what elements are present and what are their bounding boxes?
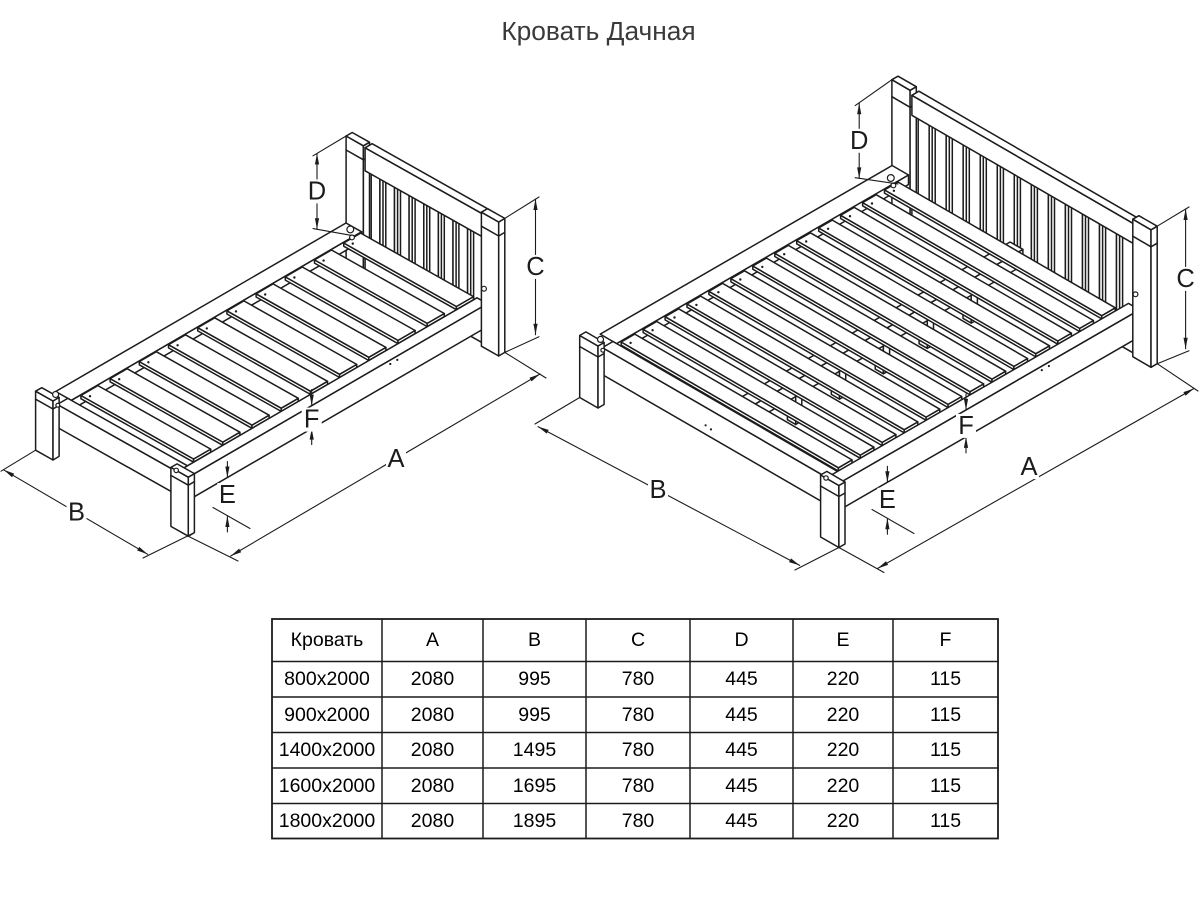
svg-text:115: 115: [930, 775, 961, 797]
svg-text:D: D: [734, 629, 748, 651]
svg-text:F: F: [958, 412, 974, 440]
svg-text:B: B: [528, 629, 541, 651]
svg-text:115: 115: [930, 810, 961, 832]
svg-text:C: C: [526, 253, 544, 281]
svg-text:1400х2000: 1400х2000: [279, 739, 376, 761]
svg-text:E: E: [219, 481, 236, 509]
svg-text:B: B: [649, 476, 666, 504]
svg-text:2080: 2080: [411, 704, 455, 726]
svg-text:115: 115: [930, 739, 961, 761]
svg-text:115: 115: [930, 704, 961, 726]
svg-text:780: 780: [622, 775, 655, 797]
svg-text:995: 995: [518, 668, 551, 690]
svg-text:2080: 2080: [411, 810, 455, 832]
svg-text:220: 220: [827, 775, 860, 797]
svg-text:220: 220: [827, 739, 860, 761]
svg-text:445: 445: [725, 775, 758, 797]
svg-text:B: B: [68, 499, 85, 527]
svg-text:780: 780: [622, 739, 655, 761]
svg-text:1800х2000: 1800х2000: [279, 810, 376, 832]
svg-text:E: E: [879, 486, 896, 514]
svg-text:D: D: [308, 177, 326, 205]
svg-text:1895: 1895: [513, 810, 557, 832]
svg-text:1600х2000: 1600х2000: [279, 775, 376, 797]
svg-text:220: 220: [827, 668, 860, 690]
svg-text:Кровать: Кровать: [291, 629, 364, 651]
svg-text:445: 445: [725, 739, 758, 761]
svg-text:900х2000: 900х2000: [284, 704, 370, 726]
svg-text:F: F: [940, 629, 952, 651]
svg-text:C: C: [1176, 265, 1194, 293]
svg-text:780: 780: [622, 704, 655, 726]
svg-text:115: 115: [930, 668, 961, 690]
svg-text:E: E: [836, 629, 849, 651]
svg-text:C: C: [631, 629, 645, 651]
svg-text:800х2000: 800х2000: [284, 668, 370, 690]
svg-text:220: 220: [827, 704, 860, 726]
svg-text:780: 780: [622, 810, 655, 832]
svg-text:2080: 2080: [411, 739, 455, 761]
svg-text:A: A: [387, 445, 404, 473]
svg-text:1495: 1495: [513, 739, 557, 761]
svg-text:2080: 2080: [411, 668, 455, 690]
svg-text:445: 445: [725, 810, 758, 832]
svg-text:445: 445: [725, 668, 758, 690]
svg-text:445: 445: [725, 704, 758, 726]
svg-text:2080: 2080: [411, 775, 455, 797]
svg-text:1695: 1695: [513, 775, 557, 797]
svg-text:220: 220: [827, 810, 860, 832]
svg-text:D: D: [850, 127, 868, 155]
svg-text:F: F: [304, 406, 320, 434]
svg-text:A: A: [426, 629, 439, 651]
svg-text:A: A: [1020, 453, 1037, 481]
svg-text:Кровать Дачная: Кровать Дачная: [501, 16, 695, 46]
svg-text:780: 780: [622, 668, 655, 690]
svg-text:995: 995: [518, 704, 551, 726]
